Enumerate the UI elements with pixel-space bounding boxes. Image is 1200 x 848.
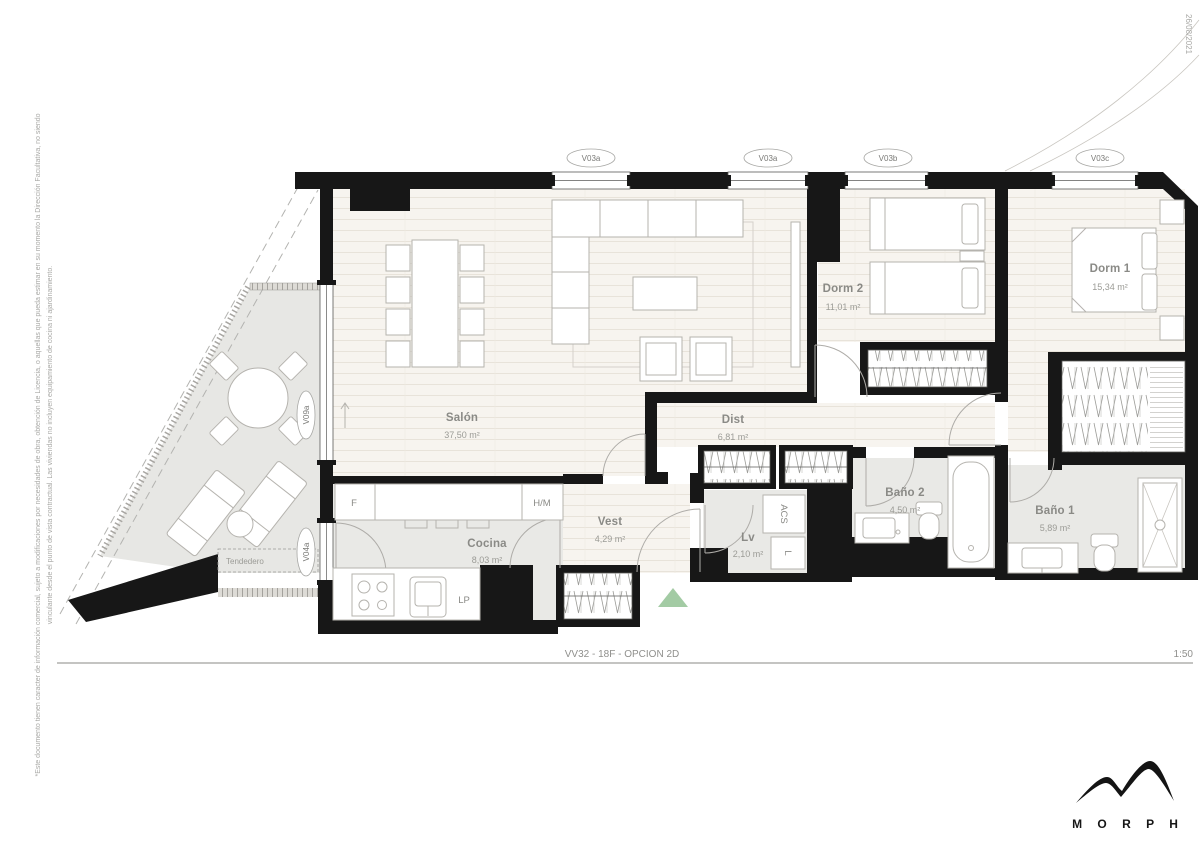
- sheet-title: VV32 - 18F - OPCION 2D: [565, 649, 679, 660]
- label-dist-area: 6,81 m²: [718, 432, 749, 442]
- toilet: [1091, 534, 1118, 571]
- svg-text:ACS: ACS: [778, 504, 789, 524]
- dining-chair: [460, 277, 484, 303]
- disclaimer-line-1: *Este documento tienen caracter de infor…: [35, 113, 42, 776]
- label-cocina: Cocina: [467, 538, 507, 550]
- bed-single: [870, 198, 985, 250]
- label-dorm1: Dorm 1: [1090, 263, 1131, 275]
- dining-chair: [460, 341, 484, 367]
- tendedero-label: Tendedero: [226, 557, 264, 566]
- label-cocina-area: 8,03 m²: [472, 555, 503, 565]
- dining-chair: [460, 309, 484, 335]
- terrace-black-wedge: [68, 554, 218, 622]
- sheet-scale: 1:50: [1174, 649, 1194, 660]
- label-bano1: Baño 1: [1035, 505, 1075, 517]
- terrace-table: [228, 368, 288, 428]
- svg-text:V03c: V03c: [1091, 154, 1109, 163]
- bathtub: [948, 456, 994, 568]
- floor-dist: [657, 403, 995, 447]
- morph-logo-text: M O R P H: [1072, 817, 1184, 831]
- dining-table: [412, 240, 458, 367]
- kitchen-counter: [335, 484, 563, 520]
- label-salon-area: 37,50 m²: [444, 430, 480, 440]
- dining-chair: [386, 245, 410, 271]
- entry-marker: [658, 588, 688, 607]
- floor-plan-sheet: Tendedero: [0, 0, 1200, 848]
- svg-text:L: L: [782, 550, 793, 555]
- label-dorm2-area: 11,01 m²: [826, 302, 861, 312]
- label-bano2: Baño 2: [885, 487, 925, 499]
- door-dorm2: [815, 345, 867, 397]
- sink: [1008, 543, 1078, 573]
- label-salon: Salón: [446, 412, 478, 424]
- morph-logo: M O R P H: [1072, 761, 1184, 831]
- window-v03a-1: V03a: [549, 149, 633, 189]
- structural-column: [807, 172, 840, 262]
- structural-column: [480, 565, 533, 620]
- dining-chair: [386, 341, 410, 367]
- structural-column: [350, 189, 410, 211]
- sink: [855, 513, 909, 543]
- floor-vest: [563, 484, 690, 573]
- dining-chair: [386, 309, 410, 335]
- svg-text:V09a: V09a: [302, 405, 311, 424]
- kitchen-lower-counter: [333, 568, 480, 620]
- terrace-hatch-strip: [218, 588, 333, 597]
- fridge-label: F: [351, 498, 357, 509]
- facade-curves: [1005, 20, 1199, 171]
- shower: [1138, 478, 1182, 572]
- coffee-table: [633, 277, 697, 310]
- svg-text:V03a: V03a: [759, 154, 778, 163]
- label-bano2-area: 4,50 m²: [890, 505, 921, 515]
- label-lv-area: 2,10 m²: [733, 549, 764, 559]
- hm-label: H/M: [533, 498, 551, 509]
- sliding-door-salon: [791, 222, 800, 367]
- title-block: VV32 - 18F - OPCION 2D 1:50: [57, 649, 1193, 663]
- dining-chair: [460, 245, 484, 271]
- armchair: [640, 337, 682, 381]
- pillow: [1142, 274, 1157, 310]
- plan-date: 26/08/2021: [1184, 14, 1193, 55]
- morph-logo-icon: [1076, 761, 1174, 803]
- label-bano1-area: 5,89 m²: [1040, 523, 1071, 533]
- window-v03b: V03b: [842, 149, 931, 189]
- lp-label: LP: [458, 595, 470, 606]
- dining-chair: [386, 277, 410, 303]
- window-v03c: V03c: [1049, 149, 1141, 189]
- lounger-side-table: [227, 511, 253, 537]
- svg-text:V03a: V03a: [582, 154, 601, 163]
- nightstand: [1160, 316, 1184, 340]
- svg-text:V03b: V03b: [879, 154, 898, 163]
- wardrobe-dorm1-shelves: [1150, 363, 1183, 450]
- nightstand: [1160, 200, 1184, 224]
- window-v03a-2: V03a: [725, 149, 811, 189]
- bed-single: [870, 262, 985, 314]
- disclaimer-line-2: vinculante desde el punto de vista contr…: [47, 266, 54, 624]
- label-dist: Dist: [722, 414, 745, 426]
- label-lv: Lv: [741, 532, 755, 544]
- label-dorm1-area: 15,34 m²: [1092, 282, 1128, 292]
- label-dorm2: Dorm 2: [823, 283, 864, 295]
- label-vest-area: 4,29 m²: [595, 534, 626, 544]
- svg-text:V04a: V04a: [302, 542, 311, 561]
- label-vest: Vest: [598, 516, 622, 528]
- armchair: [690, 337, 732, 381]
- nightstand: [960, 251, 984, 261]
- pillow: [1142, 233, 1157, 269]
